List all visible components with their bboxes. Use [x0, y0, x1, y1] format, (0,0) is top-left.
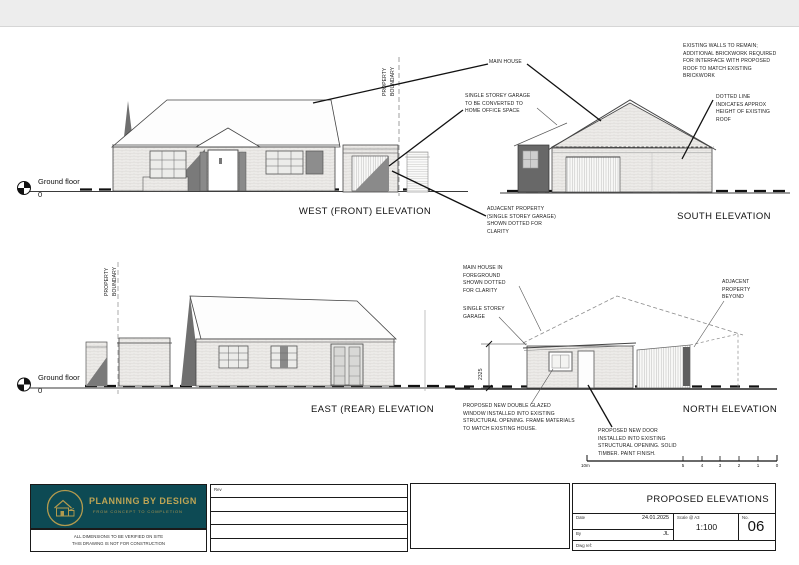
dimension-2325 [481, 341, 527, 391]
ground-floor-value-east: 0 [38, 386, 42, 395]
south-elevation-title: SOUTH ELEVATION [658, 211, 790, 222]
single-storey-garage-label: SINGLE STOREY GARAGE [463, 306, 505, 321]
north-elevation-title: NORTH ELEVATION [668, 404, 792, 415]
property-boundary-label-west: PROPERTY BOUNDARY [382, 69, 397, 96]
dotted-line-label: DOTTED LINE INDICATES APPROX HEIGHT OF E… [716, 94, 776, 124]
east-elevation-title: EAST (REAR) ELEVATION [300, 404, 445, 415]
north-new-door [578, 351, 594, 388]
west-garden-wall [143, 177, 188, 191]
south-garage-door [566, 157, 620, 192]
ground-floor-value-west: 0 [38, 190, 42, 199]
east-window-1 [219, 346, 248, 368]
adjacent-garage-label: ADJACENT PROPERTY (SINGLE STOREY GARAGE)… [487, 206, 557, 236]
north-timber-section [637, 345, 690, 388]
elevation-linework [0, 0, 799, 565]
ground-floor-label-west: Ground floor [38, 177, 80, 186]
scale-tick-1: 1 [753, 463, 763, 468]
south-adjacent-structure [518, 145, 549, 192]
dimension-2325-label: 2325 [478, 358, 486, 380]
main-house-roofline-behind [514, 123, 567, 146]
scale-tick-3: 3 [715, 463, 725, 468]
scale-tick-0: 0 [772, 463, 782, 468]
west-window-small [306, 151, 323, 174]
scale-tick-5: 5 [678, 463, 688, 468]
datum-symbol-east [18, 378, 31, 391]
datum-symbol-west [18, 182, 31, 195]
adjacent-beyond-label: ADJACENT PROPERTY BEYOND [722, 279, 754, 302]
east-garage [117, 338, 172, 386]
scale-tick-2: 2 [734, 463, 744, 468]
east-left-wall [86, 342, 107, 386]
scale-tick-4: 4 [697, 463, 707, 468]
west-elevation-title: WEST (FRONT) ELEVATION [295, 206, 435, 217]
east-roof [190, 296, 396, 339]
drawing-sheet: { "sheet": { "accent_teal": "#0d4a54", "… [0, 0, 799, 565]
east-french-doors [331, 344, 363, 385]
existing-walls-label: EXISTING WALLS TO REMAIN; ADDITIONAL BRI… [683, 43, 779, 81]
east-window-2 [271, 346, 297, 368]
west-adjacent-structure [405, 152, 430, 192]
property-boundary-label-east: PROPERTY BOUNDARY [104, 269, 119, 296]
front-door [208, 150, 238, 191]
east-elevation-drawing [28, 262, 470, 394]
west-garage [343, 145, 398, 192]
west-window-right [266, 151, 303, 174]
garage-conversion-label: SINGLE STOREY GARAGE TO BE CONVERTED TO … [465, 93, 531, 116]
main-house-label: MAIN HOUSE [489, 59, 529, 67]
ground-floor-label-east: Ground floor [38, 373, 80, 382]
main-house-dashed-roof [523, 296, 743, 343]
scale-left-label: 10m [581, 463, 595, 468]
south-gable-wall [552, 103, 712, 148]
main-house-foreground-label: MAIN HOUSE IN FOREGROUND SHOWN DOTTED FO… [463, 265, 515, 295]
new-door-label: PROPOSED NEW DOOR INSTALLED INTO EXISTIN… [598, 428, 686, 458]
new-window-label: PROPOSED NEW DOUBLE GLAZED WINDOW INSTAL… [463, 403, 575, 433]
north-new-window [549, 352, 572, 371]
west-window-left [150, 151, 186, 178]
